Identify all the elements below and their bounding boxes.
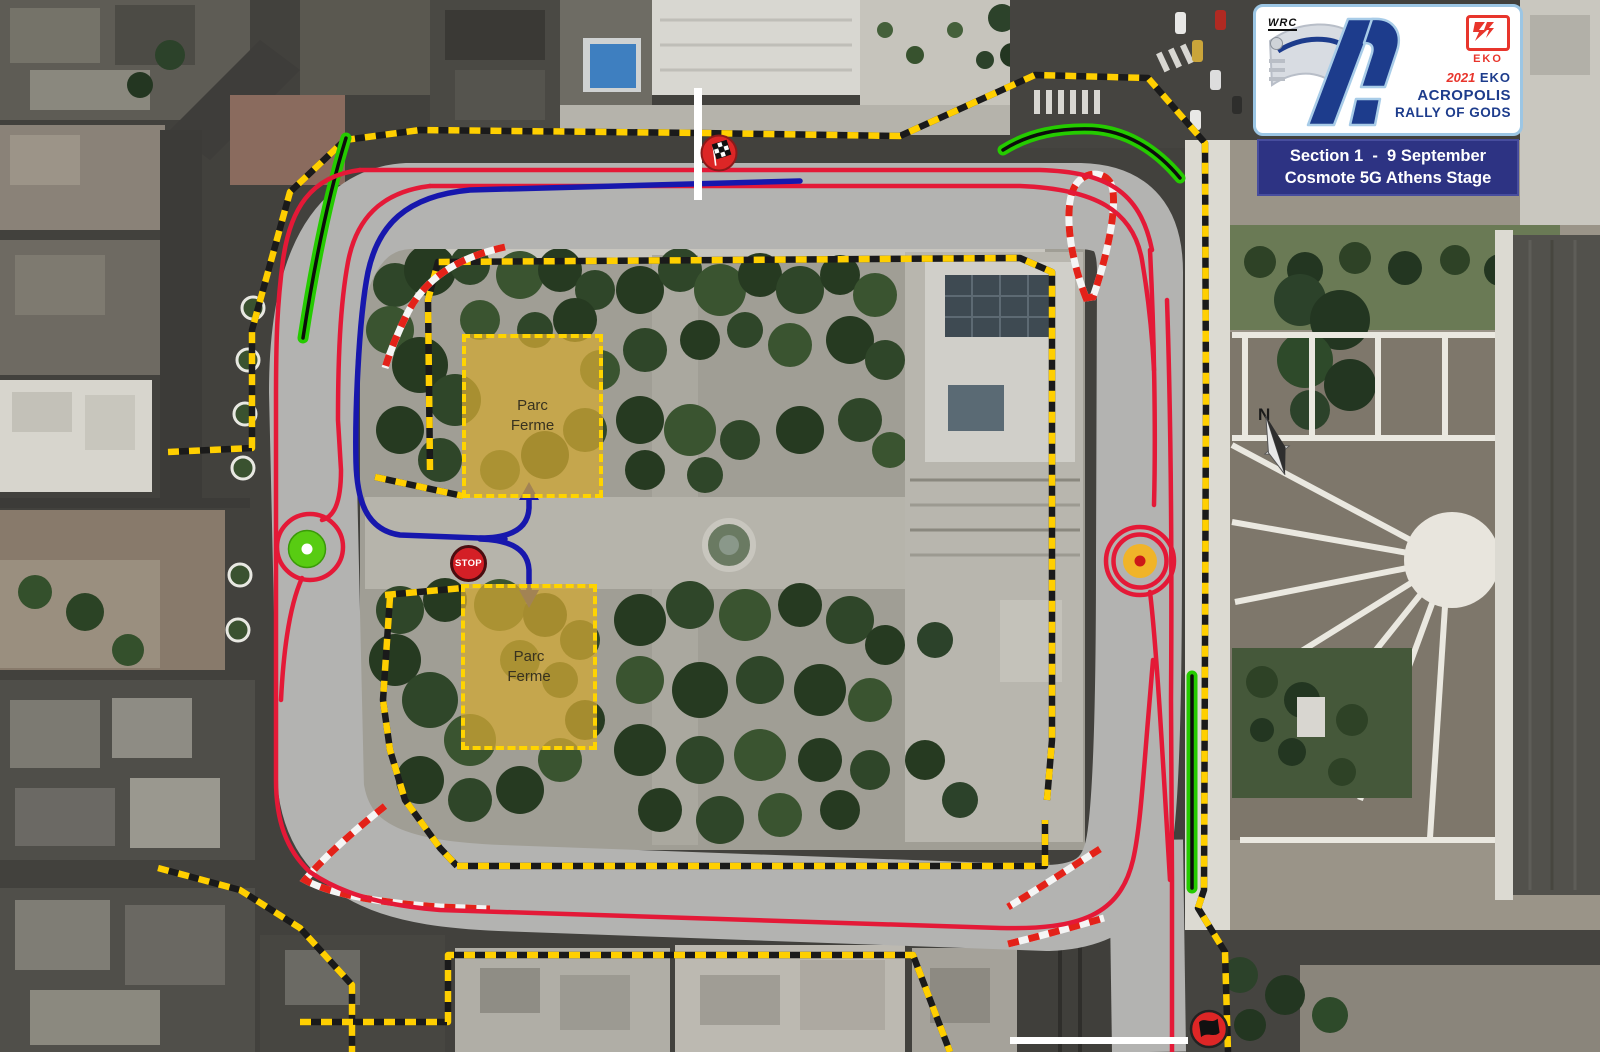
rally-title: 2021 EKO ACROPOLIS RALLY OF GODS — [1395, 69, 1511, 120]
wrc-logo: WRC — [1268, 17, 1297, 31]
finish-line — [694, 88, 702, 200]
rally-logo-panel: WRC EKO 2021 EKO ACROPOLIS RALLY OF GODS — [1253, 4, 1523, 136]
fia-logo-icon — [1270, 37, 1283, 50]
square-east-terrace — [905, 252, 1083, 842]
parliament-roof — [1513, 235, 1600, 895]
regroup-control-orange-icon — [1123, 544, 1157, 578]
parc-ferme-lower: Parc Ferme — [461, 584, 597, 750]
track-exit-road — [1146, 840, 1149, 1052]
start-line — [1010, 1037, 1188, 1044]
rally-title-line2: RALLY OF GODS — [1395, 105, 1511, 121]
plaza-rotunda — [1404, 512, 1500, 608]
rally-year: 2021 — [1446, 70, 1475, 85]
city-southeast — [1000, 930, 1600, 1052]
eko-logo-text: EKO — [1466, 53, 1510, 65]
parc-ferme-upper-label: Parc Ferme — [511, 396, 554, 437]
black-flag-icon — [1191, 1011, 1227, 1047]
stage-title-card: WRC EKO 2021 EKO ACROPOLIS RALLY OF GODS… — [1253, 4, 1523, 196]
rally-sponsor: EKO — [1480, 70, 1511, 85]
section-line: Section 1 - 9 September — [1261, 145, 1515, 167]
stop-sign-icon: STOP — [450, 545, 487, 582]
monument — [1297, 697, 1325, 737]
parc-ferme-upper: Parc Ferme — [462, 334, 603, 498]
sponsor-marks — [1269, 59, 1285, 81]
eko-logo-icon — [1466, 15, 1510, 51]
rally-title-line1: ACROPOLIS — [1395, 87, 1511, 104]
stage-banner: Section 1 - 9 September Cosmote 5G Athen… — [1257, 139, 1519, 196]
rooftop-pool — [590, 44, 636, 88]
parc-ferme-lower-label: Parc Ferme — [507, 647, 550, 688]
stage-line: Cosmote 5G Athens Stage — [1261, 167, 1515, 189]
rally-stage-map: N Parc Ferme Parc Ferme STOP — [0, 0, 1600, 1052]
checkered-flag-icon — [702, 136, 737, 171]
start-control-green-icon — [289, 531, 326, 568]
